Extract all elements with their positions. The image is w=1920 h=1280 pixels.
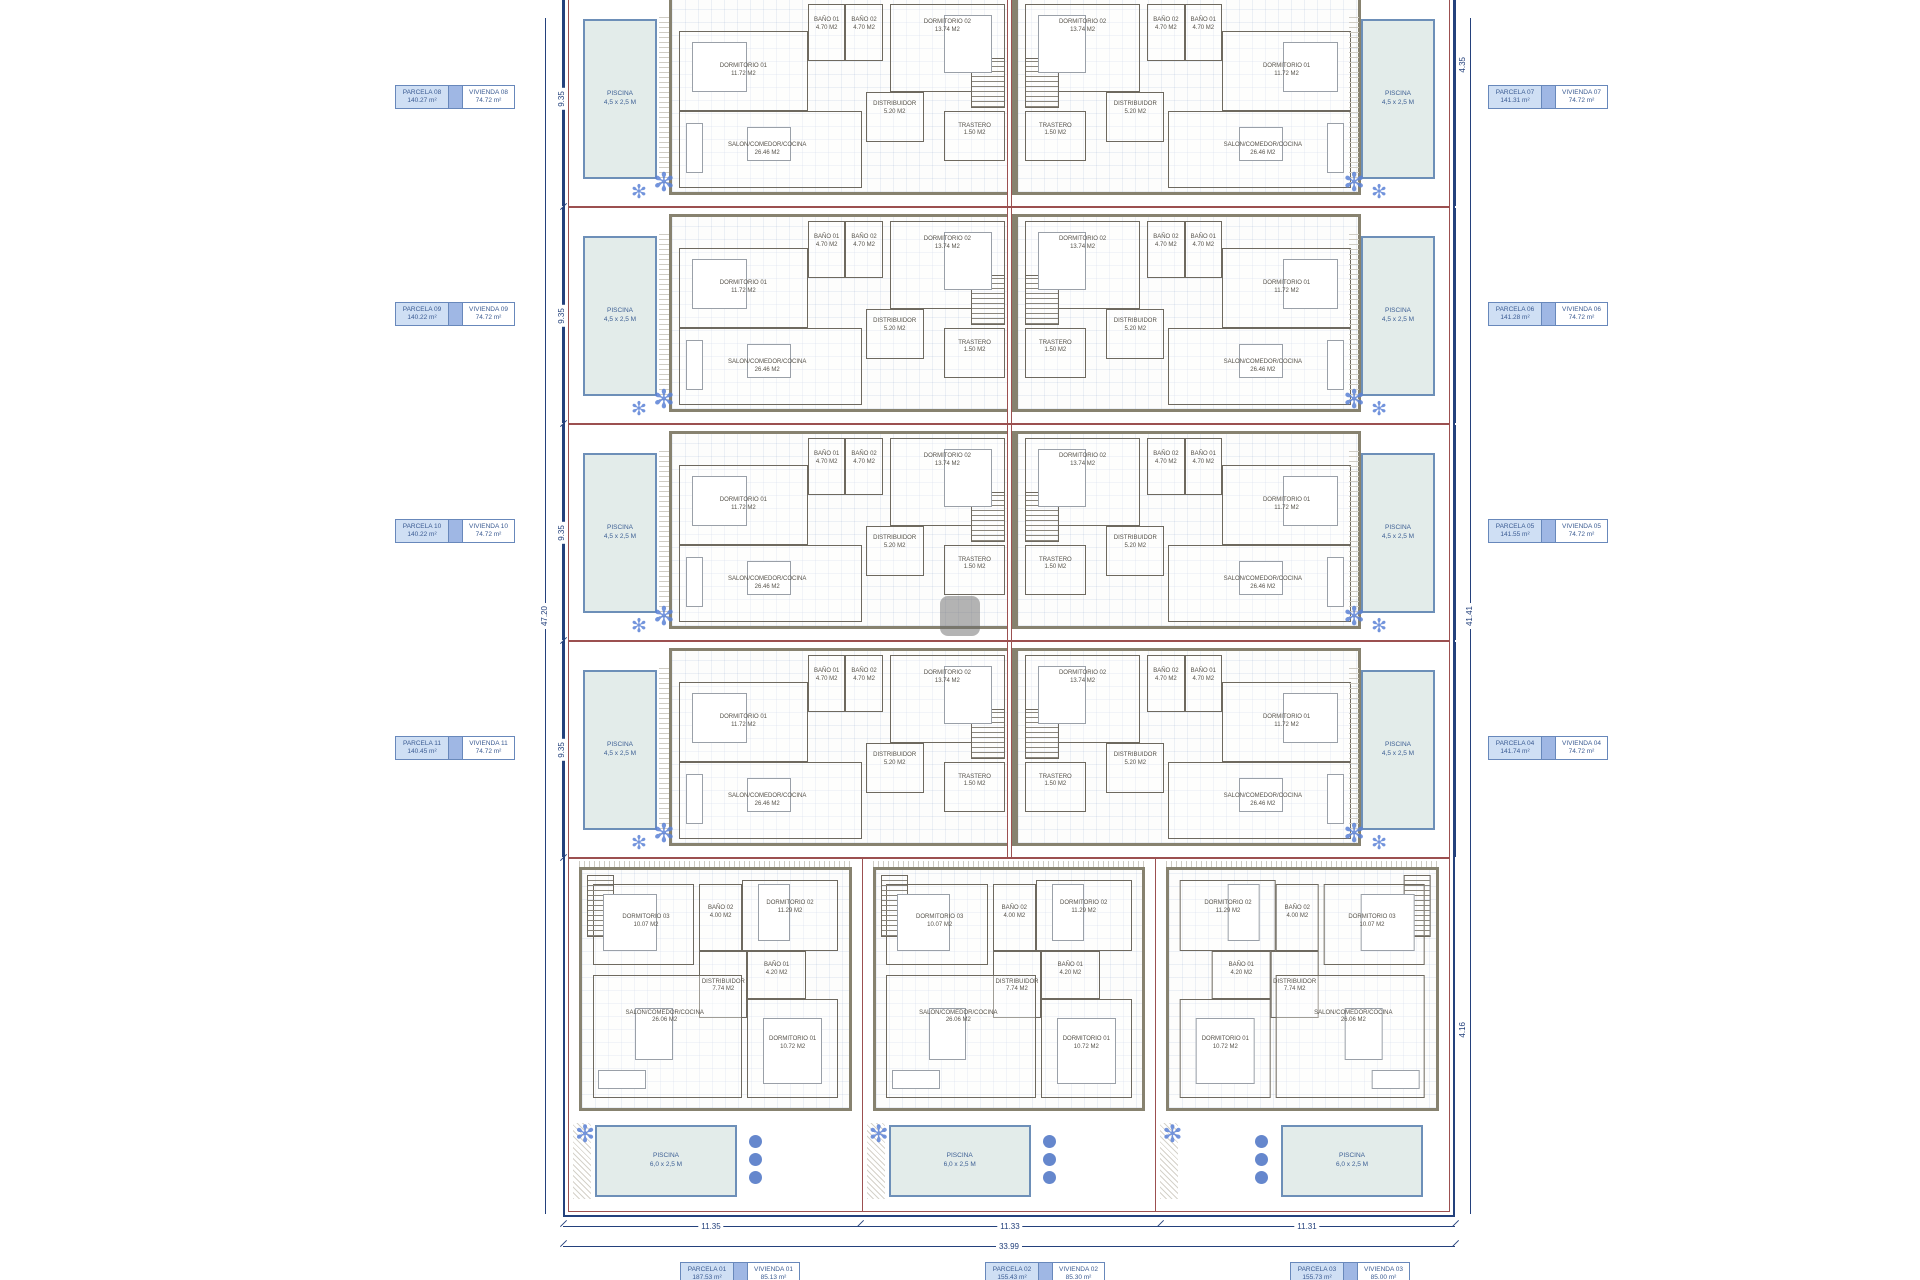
dwelling-unit-type-a-mirrored: DORMITORIO 0111.72 M2 SALON/COMEDOR/COCI… [1015, 648, 1361, 846]
parcel-row: 9.35 PISCINA4,5 x 2,5 M [569, 0, 1449, 208]
room-label: DORMITORIO 0310.07 M2 [916, 915, 963, 931]
dwelling-unit-type-b: DORMITORIO 0310.07 M2 DORMITORIO 0211.29… [862, 859, 1156, 1211]
parcel-label: PARCELA 11140.45 m² VIVIENDA 1174.72 m² [395, 736, 515, 760]
pool-label: PISCINA4,5 x 2,5 M [604, 90, 636, 108]
room-label: BAÑO 024.70 M2 [1153, 234, 1178, 250]
plant-icon: ✻ [1371, 617, 1387, 636]
dimension-row-height-right [1455, 425, 1456, 640]
room-label: BAÑO 024.70 M2 [1153, 668, 1178, 684]
right-parcel-labels: PARCELA 07141.31 m² VIVIENDA 0774.72 m² … [1488, 0, 1608, 1280]
room-label: BAÑO 024.70 M2 [851, 451, 876, 467]
parcel-label: PARCELA 06141.28 m² VIVIENDA 0674.72 m² [1488, 302, 1608, 326]
room-label: BAÑO 024.70 M2 [1153, 451, 1178, 467]
dimension-row-height-right [1455, 208, 1456, 423]
room-label: BAÑO 014.20 M2 [1229, 962, 1254, 978]
dimension-value: 9.35 [557, 305, 566, 327]
room-label: DORMITORIO 0110.72 M2 [1202, 1036, 1249, 1052]
room-label: DORMITORIO 0111.72 M2 [720, 280, 767, 296]
dimension-value: 9.35 [557, 88, 566, 110]
bottom-units: DORMITORIO 0310.07 M2 DORMITORIO 0211.29… [569, 859, 1449, 1211]
room-label: DISTRIBUIDOR7.74 M2 [995, 979, 1038, 995]
dwelling-unit-type-a-mirrored: DORMITORIO 0111.72 M2 SALON/COMEDOR/COCI… [1015, 0, 1361, 195]
room-label: DORMITORIO 0213.74 M2 [924, 453, 971, 469]
room-label: BAÑO 024.00 M2 [708, 905, 733, 921]
dimension-value: 33.99 [996, 1243, 1022, 1251]
dimension-value: 47.20 [540, 603, 549, 629]
room-label: BAÑO 014.70 M2 [814, 234, 839, 250]
hatched-terrace [1160, 1123, 1178, 1199]
room-label: DORMITORIO 0111.72 M2 [1263, 497, 1310, 513]
dimension-tick [560, 1240, 567, 1247]
label-spacer [1542, 737, 1556, 759]
room-label: SALON/COMEDOR/COCINA26.46 M2 [1224, 576, 1302, 592]
pool: PISCINA4,5 x 2,5 M [1361, 19, 1435, 179]
dimension-row-height: 9.35 [562, 0, 563, 206]
room-label: BAÑO 024.00 M2 [1285, 905, 1310, 921]
room-label: BAÑO 014.70 M2 [1191, 451, 1216, 467]
dimension-right-total: 41.41 [1470, 18, 1471, 1214]
sofa-icon [1372, 1070, 1420, 1089]
logo-watermark [940, 596, 980, 636]
pool-label: PISCINA4,5 x 2,5 M [604, 307, 636, 325]
sofa-icon [686, 774, 703, 824]
room-label: SALON/COMEDOR/COCINA26.06 M2 [1314, 1010, 1392, 1026]
sofa-icon [1327, 340, 1344, 390]
pool-label: PISCINA4,5 x 2,5 M [604, 741, 636, 759]
plant-dots-icon [1043, 1135, 1057, 1189]
room-label: DISTRIBUIDOR5.20 M2 [1114, 319, 1157, 335]
hatched-terrace [573, 1123, 591, 1199]
pool-label: PISCINA6,0 x 2,5 M [1336, 1152, 1368, 1170]
room-label: TRASTERO1.50 M2 [958, 340, 991, 356]
room-label: BAÑO 024.70 M2 [851, 668, 876, 684]
dimension-right-bottom: 4.16 [1458, 1020, 1467, 1040]
pool-label: PISCINA6,0 x 2,5 M [944, 1152, 976, 1170]
sofa-icon [892, 1070, 940, 1089]
room-label: DISTRIBUIDOR5.20 M2 [1114, 753, 1157, 769]
dimension-tick [857, 1220, 864, 1227]
room-label: DORMITORIO 0111.72 M2 [1263, 63, 1310, 79]
sofa-icon [1327, 557, 1344, 607]
room-label: BAÑO 014.70 M2 [814, 668, 839, 684]
room-label: DORMITORIO 0213.74 M2 [924, 670, 971, 686]
pool: PISCINA4,5 x 2,5 M [1361, 670, 1435, 830]
parcel-cell: PARCELA 11140.45 m² [396, 737, 449, 759]
dimension-value: 11.31 [1294, 1223, 1319, 1231]
room-label: BAÑO 014.70 M2 [814, 451, 839, 467]
hatched-terrace [867, 1123, 885, 1199]
parcel-cell: PARCELA 08140.27 m² [396, 86, 449, 108]
room-label: TRASTERO1.50 M2 [958, 123, 991, 139]
parcel-label: PARCELA 03155.73 m² VIVIENDA 0385.00 m² [1290, 1262, 1410, 1280]
parcel-label: PARCELA 08140.27 m² VIVIENDA 0874.72 m² [395, 85, 515, 109]
pool-label: PISCINA4,5 x 2,5 M [1382, 741, 1414, 759]
room-label: SALON/COMEDOR/COCINA26.46 M2 [1224, 359, 1302, 375]
room-label: DISTRIBUIDOR5.20 M2 [1114, 102, 1157, 118]
room-label: DORMITORIO 0213.74 M2 [1059, 453, 1106, 469]
dwelling-unit-type-a: DORMITORIO 0111.72 M2 SALON/COMEDOR/COCI… [669, 648, 1015, 846]
parcel-label: PARCELA 09140.22 m² VIVIENDA 0974.72 m² [395, 302, 515, 326]
room-label: SALON/COMEDOR/COCINA26.46 M2 [728, 793, 806, 809]
dwelling-unit-type-a: DORMITORIO 0111.72 M2 SALON/COMEDOR/COCI… [669, 0, 1015, 195]
room-label: SALON/COMEDOR/COCINA26.46 M2 [728, 142, 806, 158]
left-parcel-labels: PARCELA 08140.27 m² VIVIENDA 0874.72 m² … [395, 0, 515, 1280]
room-label: TRASTERO1.50 M2 [1039, 123, 1072, 139]
room-label: DORMITORIO 0213.74 M2 [924, 236, 971, 252]
parcel-cell: PARCELA 02155.43 m² [986, 1263, 1039, 1280]
deck-terrace [659, 232, 669, 400]
deck-terrace [1349, 449, 1359, 617]
room-label: DORMITORIO 0211.29 M2 [1204, 900, 1251, 916]
parcel-label: PARCELA 02155.43 m² VIVIENDA 0285.30 m² [985, 1262, 1105, 1280]
site-boundary: 9.35 PISCINA4,5 x 2,5 M [563, 0, 1455, 1217]
room-label: TRASTERO1.50 M2 [958, 557, 991, 573]
room-label: DORMITORIO 0111.72 M2 [720, 714, 767, 730]
room-label: DORMITORIO 0213.74 M2 [924, 19, 971, 35]
parcel-cell: PARCELA 03155.73 m² [1291, 1263, 1344, 1280]
room-label: DORMITORIO 0110.72 M2 [1063, 1036, 1110, 1052]
dwelling-unit-type-a: DORMITORIO 0111.72 M2 SALON/COMEDOR/COCI… [669, 214, 1015, 412]
room-label: BAÑO 014.70 M2 [1191, 234, 1216, 250]
parcel-label: PARCELA 01187.53 m² VIVIENDA 0185.13 m² [680, 1262, 800, 1280]
label-spacer [449, 303, 463, 325]
house-type-b: DORMITORIO 0310.07 M2 DORMITORIO 0211.29… [579, 867, 852, 1111]
plant-dots-icon [749, 1135, 763, 1189]
room-label: TRASTERO1.50 M2 [958, 774, 991, 790]
room-label: DORMITORIO 0213.74 M2 [1059, 19, 1106, 35]
room-label: TRASTERO1.50 M2 [1039, 557, 1072, 573]
deck-terrace [659, 15, 669, 183]
plant-icon: ✻ [1371, 183, 1387, 202]
room-label: DISTRIBUIDOR5.20 M2 [873, 536, 916, 552]
room-label: DORMITORIO 0211.29 M2 [1060, 900, 1107, 916]
parcel-cell: PARCELA 05141.55 m² [1489, 520, 1542, 542]
site-plan-drawing: 9.35 PISCINA4,5 x 2,5 M [0, 0, 1920, 1280]
label-spacer [1039, 1263, 1053, 1280]
deck-terrace [1349, 232, 1359, 400]
sofa-icon [686, 557, 703, 607]
plant-icon: ✻ [1371, 400, 1387, 419]
room-label: BAÑO 024.70 M2 [851, 17, 876, 33]
room-label: DORMITORIO 0310.07 M2 [1348, 915, 1395, 931]
dimension-tick [1452, 1220, 1459, 1227]
parcel-cell: PARCELA 04141.74 m² [1489, 737, 1542, 759]
room-label: DISTRIBUIDOR5.20 M2 [873, 102, 916, 118]
parcel-cell: PARCELA 09140.22 m² [396, 303, 449, 325]
dimension-bottom-total: 33.99 [563, 1246, 1455, 1247]
house-type-b: DORMITORIO 0310.07 M2 DORMITORIO 0211.29… [1166, 867, 1439, 1111]
pool: PISCINA4,5 x 2,5 M [1361, 453, 1435, 613]
parcel-cell: PARCELA 01187.53 m² [681, 1263, 734, 1280]
dimension-row-height-right [1455, 0, 1456, 206]
pool-label: PISCINA6,0 x 2,5 M [650, 1152, 682, 1170]
parcel-cell: PARCELA 06141.28 m² [1489, 303, 1542, 325]
room-label: DORMITORIO 0111.72 M2 [1263, 280, 1310, 296]
parcel-row: 9.35 PISCINA4,5 x 2,5 M [569, 425, 1449, 642]
party-wall-divider [1007, 425, 1012, 640]
room-label: BAÑO 024.70 M2 [1153, 17, 1178, 33]
room-label: DISTRIBUIDOR5.20 M2 [873, 753, 916, 769]
pool: PISCINA4,5 x 2,5 M [583, 670, 657, 830]
pool-label: PISCINA4,5 x 2,5 M [1382, 307, 1414, 325]
dimension-left-total: 47.20 [545, 18, 546, 1214]
parcel-label: PARCELA 07141.31 m² VIVIENDA 0774.72 m² [1488, 85, 1608, 109]
label-spacer [1542, 520, 1556, 542]
parcel-cell: PARCELA 07141.31 m² [1489, 86, 1542, 108]
room-label: DORMITORIO 0111.72 M2 [720, 63, 767, 79]
room-label: BAÑO 024.70 M2 [851, 234, 876, 250]
vivienda-cell: VIVIENDA 0874.72 m² [463, 86, 514, 108]
vivienda-cell: VIVIENDA 0474.72 m² [1556, 737, 1607, 759]
dimension-value: 41.41 [1465, 603, 1474, 629]
room-label: DORMITORIO 0213.74 M2 [1059, 670, 1106, 686]
room-label: DISTRIBUIDOR5.20 M2 [1114, 536, 1157, 552]
dimension-value: 11.35 [698, 1223, 723, 1231]
room-label: TRASTERO1.50 M2 [1039, 340, 1072, 356]
plant-dots-icon [1255, 1135, 1269, 1189]
dwelling-unit-type-b: DORMITORIO 0310.07 M2 DORMITORIO 0211.29… [1155, 859, 1449, 1211]
plant-icon: ✻ [631, 400, 647, 419]
sofa-icon [1327, 774, 1344, 824]
pool-label: PISCINA4,5 x 2,5 M [604, 524, 636, 542]
pool-label: PISCINA4,5 x 2,5 M [1382, 524, 1414, 542]
pool: PISCINA6,0 x 2,5 M [889, 1125, 1031, 1197]
room-label: BAÑO 014.70 M2 [1191, 668, 1216, 684]
room-label: BAÑO 014.20 M2 [764, 962, 789, 978]
plant-icon: ✻ [631, 617, 647, 636]
sofa-icon [686, 123, 703, 173]
plant-icon: ✻ [1371, 834, 1387, 853]
parcel-cell: PARCELA 10140.22 m² [396, 520, 449, 542]
room-label: DISTRIBUIDOR7.74 M2 [702, 979, 745, 995]
label-spacer [1542, 303, 1556, 325]
vivienda-cell: VIVIENDA 0285.30 m² [1053, 1263, 1104, 1280]
deck-terrace [659, 449, 669, 617]
dimension-row-height: 9.35 [562, 642, 563, 857]
deck-terrace [1349, 666, 1359, 834]
dimension-value: 11.33 [997, 1223, 1022, 1231]
room-label: DISTRIBUIDOR7.74 M2 [1273, 979, 1316, 995]
room-label: SALON/COMEDOR/COCINA26.06 M2 [919, 1010, 997, 1026]
pool: PISCINA4,5 x 2,5 M [583, 453, 657, 613]
vivienda-cell: VIVIENDA 1074.72 m² [463, 520, 514, 542]
upper-rows: 9.35 PISCINA4,5 x 2,5 M [569, 0, 1449, 859]
pool-label: PISCINA4,5 x 2,5 M [1382, 90, 1414, 108]
sofa-icon [598, 1070, 646, 1089]
parcel-label: PARCELA 04141.74 m² VIVIENDA 0474.72 m² [1488, 736, 1608, 760]
parcel-row: 9.35 PISCINA4,5 x 2,5 M [569, 208, 1449, 425]
room-label: DORMITORIO 0211.29 M2 [766, 900, 813, 916]
dwelling-unit-type-a-mirrored: DORMITORIO 0111.72 M2 SALON/COMEDOR/COCI… [1015, 431, 1361, 629]
pool: PISCINA4,5 x 2,5 M [583, 236, 657, 396]
dimension-bottom-segments: 11.35 11.33 11.31 [563, 1226, 1455, 1227]
party-wall-divider [1007, 0, 1012, 206]
room-label: DORMITORIO 0111.72 M2 [720, 497, 767, 513]
room-label: SALON/COMEDOR/COCINA26.46 M2 [1224, 793, 1302, 809]
room-label: SALON/COMEDOR/COCINA26.46 M2 [1224, 142, 1302, 158]
dwelling-unit-type-b: DORMITORIO 0310.07 M2 DORMITORIO 0211.29… [569, 859, 862, 1211]
vivienda-cell: VIVIENDA 1174.72 m² [463, 737, 514, 759]
dimension-value: 9.35 [557, 522, 566, 544]
sofa-icon [686, 340, 703, 390]
dimension-right-top: 4.35 [1458, 55, 1467, 75]
room-label: TRASTERO1.50 M2 [1039, 774, 1072, 790]
deck-terrace [659, 666, 669, 834]
vivienda-cell: VIVIENDA 0185.13 m² [748, 1263, 799, 1280]
dimension-row-height-right [1455, 642, 1456, 857]
vivienda-cell: VIVIENDA 0774.72 m² [1556, 86, 1607, 108]
room-label: BAÑO 024.00 M2 [1002, 905, 1027, 921]
label-spacer [1542, 86, 1556, 108]
dimension-tick [1157, 1220, 1164, 1227]
room-label: DORMITORIO 0110.72 M2 [769, 1036, 816, 1052]
vivienda-cell: VIVIENDA 0385.00 m² [1358, 1263, 1409, 1280]
pool: PISCINA6,0 x 2,5 M [1281, 1125, 1423, 1197]
vivienda-cell: VIVIENDA 0674.72 m² [1556, 303, 1607, 325]
label-spacer [449, 737, 463, 759]
room-label: DISTRIBUIDOR5.20 M2 [873, 319, 916, 335]
label-spacer [734, 1263, 748, 1280]
parcel-label: PARCELA 05141.55 m² VIVIENDA 0574.72 m² [1488, 519, 1608, 543]
house-type-b: DORMITORIO 0310.07 M2 DORMITORIO 0211.29… [873, 867, 1146, 1111]
plant-icon: ✻ [631, 834, 647, 853]
party-wall-divider [1007, 642, 1012, 857]
room-label: DORMITORIO 0111.72 M2 [1263, 714, 1310, 730]
room-label: DORMITORIO 0310.07 M2 [622, 915, 669, 931]
plant-icon: ✻ [631, 183, 647, 202]
vivienda-cell: VIVIENDA 0574.72 m² [1556, 520, 1607, 542]
dimension-row-height: 9.35 [562, 425, 563, 640]
dimension-value: 9.35 [557, 739, 566, 761]
vivienda-cell: VIVIENDA 0974.72 m² [463, 303, 514, 325]
room-label: BAÑO 014.70 M2 [814, 17, 839, 33]
room-label: SALON/COMEDOR/COCINA26.06 M2 [625, 1010, 703, 1026]
pool: PISCINA4,5 x 2,5 M [583, 19, 657, 179]
parcel-label: PARCELA 10140.22 m² VIVIENDA 1074.72 m² [395, 519, 515, 543]
dimension-tick [1452, 1240, 1459, 1247]
dimension-tick [560, 1220, 567, 1227]
party-wall-divider [1007, 208, 1012, 423]
parcel-row: 9.35 PISCINA4,5 x 2,5 M [569, 642, 1449, 859]
pool: PISCINA6,0 x 2,5 M [595, 1125, 737, 1197]
room-label: SALON/COMEDOR/COCINA26.46 M2 [728, 576, 806, 592]
dwelling-unit-type-a-mirrored: DORMITORIO 0111.72 M2 SALON/COMEDOR/COCI… [1015, 214, 1361, 412]
room-label: DORMITORIO 0213.74 M2 [1059, 236, 1106, 252]
deck-terrace [1349, 15, 1359, 183]
sofa-icon [1327, 123, 1344, 173]
dimension-row-height: 9.35 [562, 208, 563, 423]
label-spacer [1344, 1263, 1358, 1280]
label-spacer [449, 86, 463, 108]
pool: PISCINA4,5 x 2,5 M [1361, 236, 1435, 396]
room-label: BAÑO 014.20 M2 [1058, 962, 1083, 978]
label-spacer [449, 520, 463, 542]
room-label: SALON/COMEDOR/COCINA26.46 M2 [728, 359, 806, 375]
room-label: BAÑO 014.70 M2 [1191, 17, 1216, 33]
